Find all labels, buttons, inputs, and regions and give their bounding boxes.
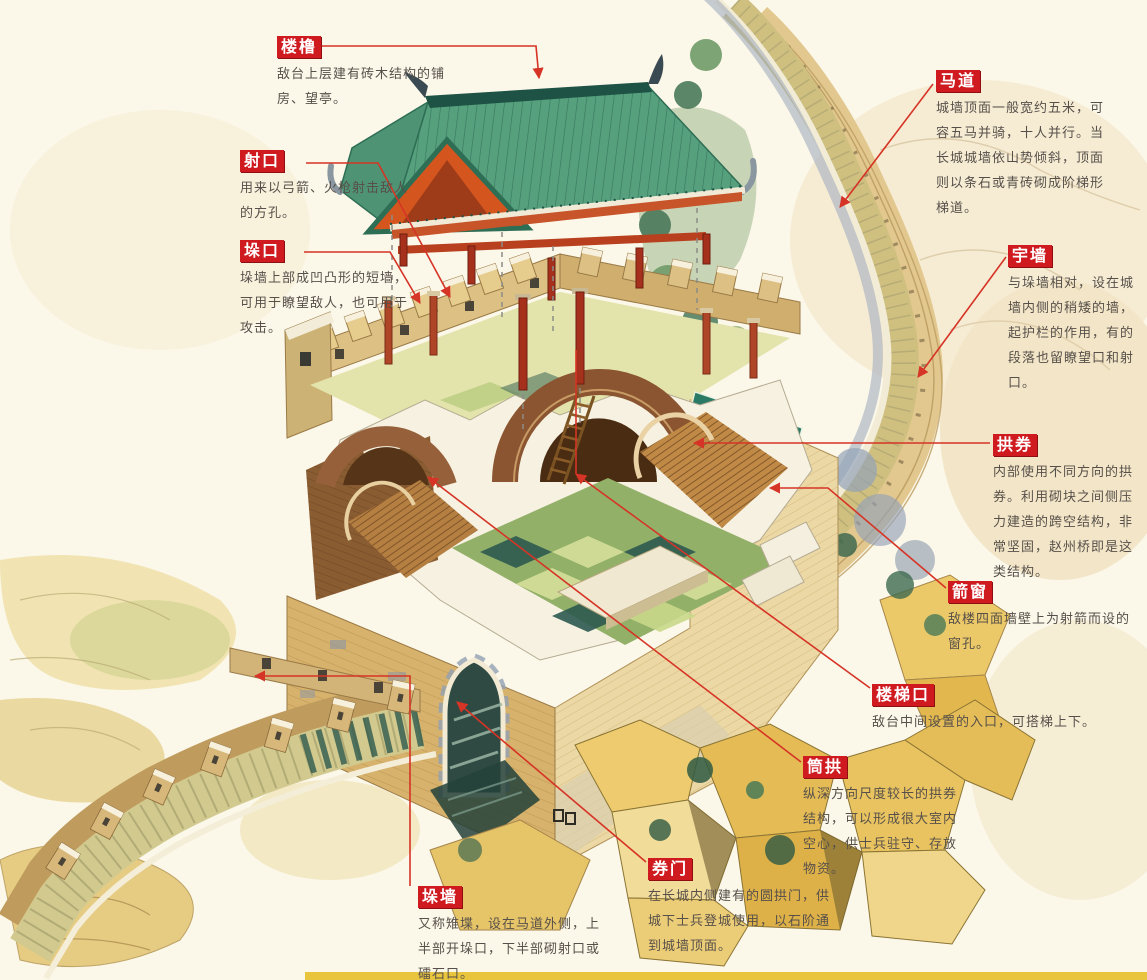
label-desc-madao: 城墙顶面一般宽约五米，可容五马并骑，十人并行。当长城城墙依山势倾斜，顶面则以条石… <box>936 96 1116 221</box>
label-shekou: 射口 用来以弓箭、火枪射击敌人的方孔。 <box>240 150 412 226</box>
label-tag-yuqiang: 宇墙 <box>1008 245 1052 267</box>
label-tag-gongquan: 拱券 <box>993 434 1037 456</box>
label-desc-duoqiang: 又称雉堞，设在马道外侧，上半部开垛口，下半部砌射口或礌石口。 <box>418 912 608 980</box>
label-desc-shekou: 用来以弓箭、火枪射击敌人的方孔。 <box>240 176 412 226</box>
label-tag-quanmen: 券门 <box>648 858 692 880</box>
label-desc-yuqiang: 与垛墙相对，设在城墙内侧的稍矮的墙，起护栏的作用，有的段落也留瞭望口和射口。 <box>1008 271 1144 396</box>
label-jianchuang: 箭窗 敌楼四面墙壁上为射箭而设的窗孔。 <box>948 581 1138 657</box>
label-gongquan: 拱券 内部使用不同方向的拱券。利用砌块之间侧压力建造的跨空结构，非常坚固，赵州桥… <box>993 434 1145 585</box>
label-desc-loutikou: 敌台中间设置的入口，可搭梯上下。 <box>872 710 1144 735</box>
label-duokou: 垛口 垛墙上部成凹凸形的短墙，可用于瞭望敌人，也可用于攻击。 <box>240 240 418 341</box>
label-duoqiang: 垛墙 又称雉堞，设在马道外侧，上半部开垛口，下半部砌射口或礌石口。 <box>418 886 608 980</box>
label-tag-madao: 马道 <box>936 70 980 92</box>
label-tag-duoqiang: 垛墙 <box>418 886 462 908</box>
label-desc-gongquan: 内部使用不同方向的拱券。利用砌块之间侧压力建造的跨空结构，非常坚固，赵州桥即是这… <box>993 460 1145 585</box>
label-loutikou: 楼梯口 敌台中间设置的入口，可搭梯上下。 <box>872 684 1144 735</box>
label-desc-jianchuang: 敌楼四面墙壁上为射箭而设的窗孔。 <box>948 607 1138 657</box>
label-tag-shekou: 射口 <box>240 150 284 172</box>
label-tag-jianchuang: 箭窗 <box>948 581 992 603</box>
label-tag-tonggong: 筒拱 <box>803 756 847 778</box>
label-desc-duokou: 垛墙上部成凹凸形的短墙，可用于瞭望敌人，也可用于攻击。 <box>240 266 418 341</box>
label-madao: 马道 城墙顶面一般宽约五米，可容五马并骑，十人并行。当长城城墙依山势倾斜，顶面则… <box>936 70 1116 221</box>
label-tag-loutikou: 楼梯口 <box>872 684 934 706</box>
label-desc-loulu: 敌台上层建有砖木结构的铺房、望亭。 <box>277 62 455 112</box>
label-quanmen: 券门 在长城内侧建有的圆拱门，供城下士兵登城使用，以石阶通到城墙顶面。 <box>648 858 830 959</box>
label-yuqiang: 宇墙 与垛墙相对，设在城墙内侧的稍矮的墙，起护栏的作用，有的段落也留瞭望口和射口… <box>1008 245 1144 396</box>
label-loulu: 楼橹 敌台上层建有砖木结构的铺房、望亭。 <box>277 36 455 112</box>
diagram-stage: 楼橹 敌台上层建有砖木结构的铺房、望亭。 射口 用来以弓箭、火枪射击敌人的方孔。… <box>0 0 1147 980</box>
label-tag-loulu: 楼橹 <box>277 36 321 58</box>
label-tag-duokou: 垛口 <box>240 240 284 262</box>
label-desc-quanmen: 在长城内侧建有的圆拱门，供城下士兵登城使用，以石阶通到城墙顶面。 <box>648 884 830 959</box>
